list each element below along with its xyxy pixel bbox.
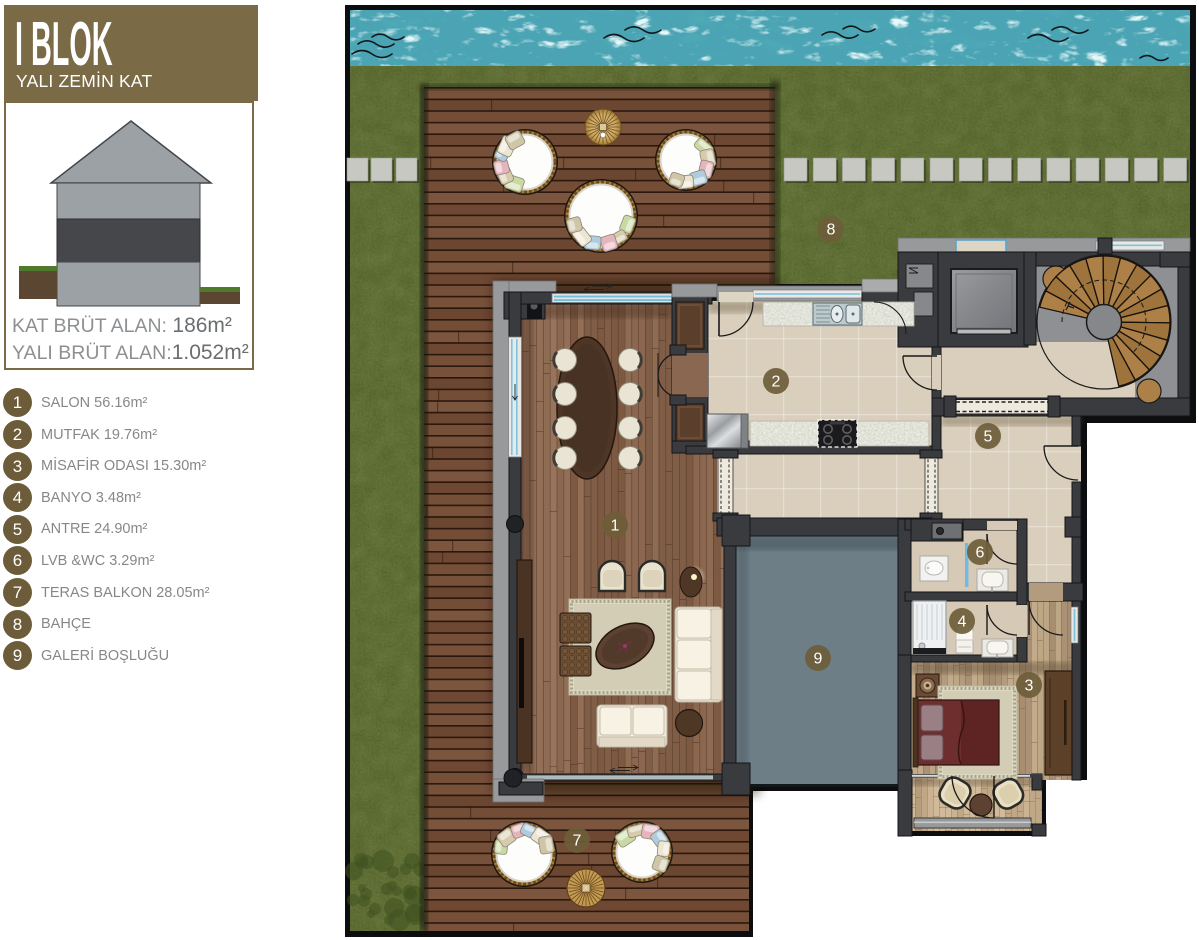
svg-text:5: 5	[984, 429, 993, 446]
svg-text:2: 2	[772, 374, 781, 391]
svg-text:4: 4	[958, 614, 967, 631]
svg-text:1: 1	[611, 518, 620, 535]
svg-text:9: 9	[814, 651, 823, 668]
svg-text:6: 6	[976, 545, 985, 562]
svg-text:8: 8	[827, 222, 836, 239]
svg-text:3: 3	[1025, 678, 1034, 695]
svg-text:7: 7	[573, 833, 582, 850]
